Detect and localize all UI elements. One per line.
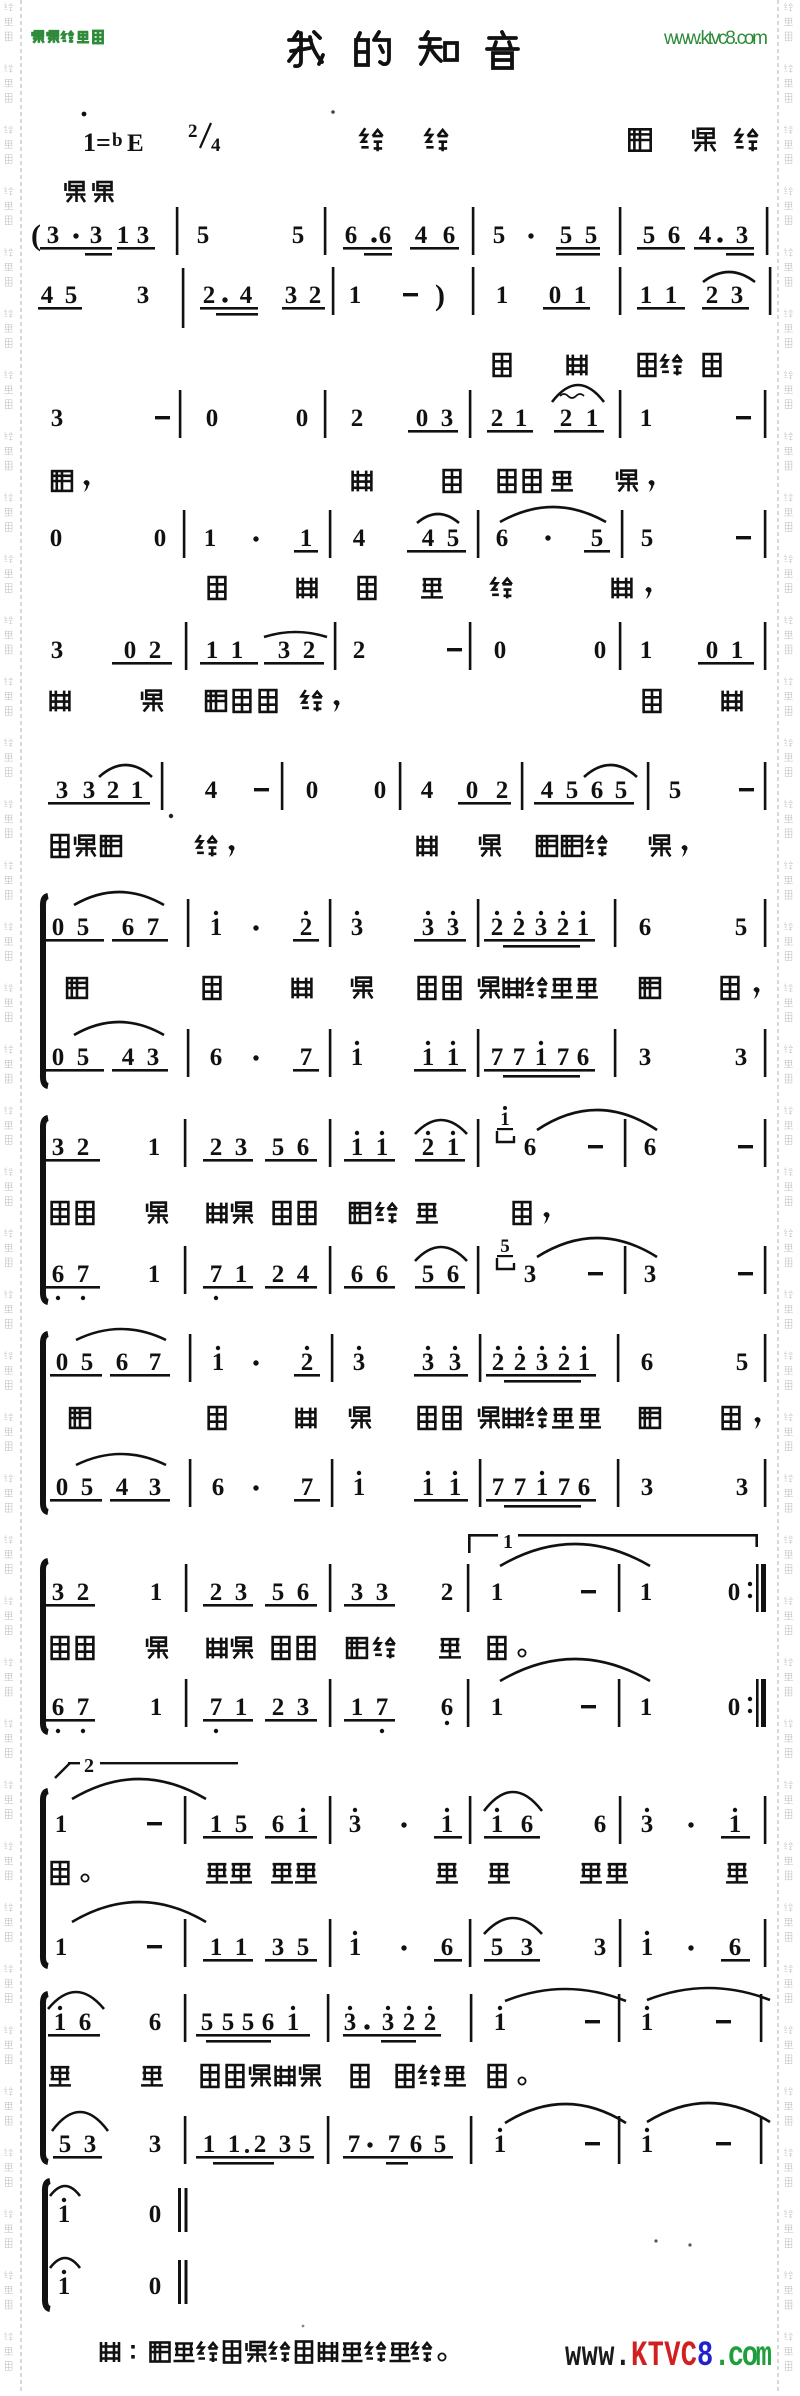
svg-text:0: 0 bbox=[154, 525, 167, 552]
svg-text:2: 2 bbox=[301, 1349, 314, 1376]
svg-text:2: 2 bbox=[303, 637, 316, 664]
svg-text:2: 2 bbox=[84, 1755, 94, 1777]
svg-text:7: 7 bbox=[557, 1044, 570, 1071]
svg-text:4: 4 bbox=[41, 282, 54, 309]
svg-text:5: 5 bbox=[272, 1134, 285, 1161]
svg-text:1: 1 bbox=[206, 637, 219, 664]
svg-text:1: 1 bbox=[447, 1134, 460, 1161]
svg-text:4: 4 bbox=[415, 222, 428, 249]
svg-text:1: 1 bbox=[491, 1811, 504, 1838]
svg-text:1: 1 bbox=[117, 222, 130, 249]
svg-text:0: 0 bbox=[149, 2273, 162, 2300]
svg-text:5: 5 bbox=[735, 914, 748, 941]
svg-text:5: 5 bbox=[493, 222, 506, 249]
svg-text:5: 5 bbox=[422, 1261, 435, 1288]
svg-text:6: 6 bbox=[639, 914, 652, 941]
svg-text:1: 1 bbox=[500, 1109, 510, 1130]
svg-text:1: 1 bbox=[353, 1474, 366, 1501]
svg-text:5: 5 bbox=[222, 2009, 235, 2036]
svg-text:7: 7 bbox=[300, 1044, 313, 1071]
svg-text:1: 1 bbox=[574, 282, 587, 309]
svg-text:7: 7 bbox=[558, 1474, 571, 1501]
svg-text:1: 1 bbox=[228, 2131, 241, 2158]
svg-text:6: 6 bbox=[379, 222, 392, 249]
svg-text:1: 1 bbox=[300, 525, 313, 552]
svg-text:2: 2 bbox=[403, 2009, 416, 2036]
svg-text:4: 4 bbox=[353, 525, 366, 552]
svg-text:7: 7 bbox=[210, 1261, 223, 1288]
svg-text:5: 5 bbox=[566, 777, 579, 804]
svg-text:1: 1 bbox=[235, 1694, 248, 1721]
svg-text:1: 1 bbox=[641, 2131, 654, 2158]
svg-text:1: 1 bbox=[640, 282, 653, 309]
svg-text:2: 2 bbox=[300, 914, 313, 941]
svg-text:5: 5 bbox=[272, 1579, 285, 1606]
svg-text:0: 0 bbox=[594, 637, 607, 664]
svg-text:2: 2 bbox=[203, 282, 216, 309]
svg-text:6: 6 bbox=[52, 1261, 65, 1288]
svg-text:0: 0 bbox=[306, 777, 319, 804]
svg-text:5: 5 bbox=[591, 525, 604, 552]
svg-text:2: 2 bbox=[513, 914, 526, 941]
svg-text:2: 2 bbox=[560, 405, 573, 432]
svg-text:0: 0 bbox=[728, 1579, 741, 1606]
svg-text:6: 6 bbox=[79, 2009, 92, 2036]
svg-text:0: 0 bbox=[728, 1694, 741, 1721]
svg-text:6: 6 bbox=[447, 1261, 460, 1288]
svg-text:5: 5 bbox=[560, 222, 573, 249]
svg-text:3: 3 bbox=[735, 1044, 748, 1071]
svg-text:0: 0 bbox=[50, 525, 63, 552]
svg-text:3: 3 bbox=[639, 1044, 652, 1071]
svg-text:1: 1 bbox=[515, 405, 528, 432]
svg-text:1: 1 bbox=[235, 1261, 248, 1288]
svg-text:3: 3 bbox=[147, 1044, 160, 1071]
svg-text:3: 3 bbox=[376, 1579, 389, 1606]
svg-text:5: 5 bbox=[197, 222, 210, 249]
svg-text:5: 5 bbox=[500, 1236, 510, 1257]
svg-text:4: 4 bbox=[205, 777, 218, 804]
svg-text:3: 3 bbox=[382, 2009, 395, 2036]
svg-text:3: 3 bbox=[56, 777, 69, 804]
svg-text:6: 6 bbox=[410, 2131, 423, 2158]
svg-text:5: 5 bbox=[585, 222, 598, 249]
svg-text:0: 0 bbox=[52, 1044, 65, 1071]
svg-text:6: 6 bbox=[578, 1474, 591, 1501]
svg-text:5: 5 bbox=[736, 1349, 749, 1376]
svg-text:3: 3 bbox=[90, 222, 103, 249]
svg-text:1: 1 bbox=[297, 1811, 310, 1838]
svg-text:2: 2 bbox=[514, 1349, 527, 1376]
svg-text:0: 0 bbox=[494, 637, 507, 664]
svg-text:1: 1 bbox=[577, 914, 590, 941]
svg-text:3: 3 bbox=[736, 1474, 749, 1501]
svg-text:4: 4 bbox=[297, 1261, 310, 1288]
svg-text:7: 7 bbox=[491, 1044, 504, 1071]
svg-text:3: 3 bbox=[83, 777, 96, 804]
svg-text:5: 5 bbox=[59, 2131, 72, 2158]
svg-text:3: 3 bbox=[149, 1474, 162, 1501]
svg-text:2: 2 bbox=[422, 1134, 435, 1161]
svg-text:2: 2 bbox=[254, 2131, 267, 2158]
svg-text:6: 6 bbox=[496, 525, 509, 552]
svg-text:5: 5 bbox=[77, 914, 90, 941]
svg-text:1: 1 bbox=[578, 1349, 591, 1376]
svg-text:2: 2 bbox=[353, 637, 366, 664]
svg-text:0: 0 bbox=[549, 282, 562, 309]
svg-text:3: 3 bbox=[149, 2131, 162, 2158]
svg-text:5: 5 bbox=[81, 1349, 94, 1376]
svg-text:3: 3 bbox=[447, 914, 460, 941]
svg-text:0: 0 bbox=[374, 777, 387, 804]
svg-text:1: 1 bbox=[55, 1811, 68, 1838]
svg-text:2: 2 bbox=[496, 777, 509, 804]
svg-text:1=: 1= bbox=[83, 128, 111, 157]
svg-text:2: 2 bbox=[107, 777, 120, 804]
svg-text:7: 7 bbox=[492, 1474, 505, 1501]
svg-text:1: 1 bbox=[150, 1694, 163, 1721]
svg-text:1: 1 bbox=[586, 405, 599, 432]
svg-text:1: 1 bbox=[491, 1694, 504, 1721]
svg-text:5: 5 bbox=[235, 1811, 248, 1838]
svg-text:1: 1 bbox=[640, 405, 653, 432]
svg-text:6: 6 bbox=[521, 1811, 534, 1838]
svg-text:3: 3 bbox=[351, 1579, 364, 1606]
svg-text:0: 0 bbox=[56, 1349, 69, 1376]
svg-text:7: 7 bbox=[77, 1261, 90, 1288]
svg-text:4: 4 bbox=[541, 777, 554, 804]
svg-text:0: 0 bbox=[124, 637, 137, 664]
svg-text:3: 3 bbox=[644, 1261, 657, 1288]
svg-text:6: 6 bbox=[297, 1134, 310, 1161]
svg-text:1: 1 bbox=[210, 1934, 223, 1961]
svg-text:4: 4 bbox=[122, 1044, 135, 1071]
svg-text:1: 1 bbox=[441, 1811, 454, 1838]
svg-text:2: 2 bbox=[309, 282, 322, 309]
svg-text:6: 6 bbox=[376, 1261, 389, 1288]
svg-text:www.: www. bbox=[565, 2337, 631, 2376]
svg-text:4: 4 bbox=[211, 135, 221, 156]
svg-text:2: 2 bbox=[351, 405, 364, 432]
svg-text:0: 0 bbox=[416, 405, 429, 432]
svg-text:5: 5 bbox=[65, 282, 78, 309]
svg-text:2: 2 bbox=[706, 282, 719, 309]
svg-text:1: 1 bbox=[349, 1934, 362, 1961]
svg-text:1: 1 bbox=[349, 282, 362, 309]
svg-text:3: 3 bbox=[422, 914, 435, 941]
svg-text:6: 6 bbox=[122, 914, 135, 941]
svg-text:1: 1 bbox=[210, 1811, 223, 1838]
svg-text:1: 1 bbox=[58, 2201, 71, 2228]
svg-text:8: 8 bbox=[697, 2337, 713, 2376]
svg-text:0: 0 bbox=[52, 914, 65, 941]
svg-text:1: 1 bbox=[449, 1474, 462, 1501]
svg-text:3: 3 bbox=[594, 1934, 607, 1961]
svg-text:6: 6 bbox=[441, 1694, 454, 1721]
svg-text:3: 3 bbox=[641, 1474, 654, 1501]
svg-text:5: 5 bbox=[641, 525, 654, 552]
svg-text:6: 6 bbox=[297, 1579, 310, 1606]
svg-text:3: 3 bbox=[279, 2131, 292, 2158]
svg-text:5: 5 bbox=[297, 1934, 310, 1961]
svg-text:6: 6 bbox=[641, 1349, 654, 1376]
svg-text:7: 7 bbox=[147, 914, 160, 941]
svg-text:7: 7 bbox=[376, 1694, 389, 1721]
svg-text:2: 2 bbox=[149, 637, 162, 664]
svg-text:0: 0 bbox=[296, 405, 309, 432]
svg-text:3: 3 bbox=[353, 1349, 366, 1376]
svg-text:2: 2 bbox=[188, 121, 198, 142]
svg-text:1: 1 bbox=[235, 1934, 248, 1961]
svg-text:1: 1 bbox=[376, 1134, 389, 1161]
svg-text:1: 1 bbox=[351, 1694, 364, 1721]
svg-text:7: 7 bbox=[149, 1349, 162, 1376]
svg-text:5: 5 bbox=[491, 1934, 504, 1961]
svg-text:1: 1 bbox=[729, 1811, 742, 1838]
svg-text:3: 3 bbox=[344, 2009, 357, 2036]
svg-text:1: 1 bbox=[204, 525, 217, 552]
svg-text:1: 1 bbox=[54, 2009, 67, 2036]
svg-text:1: 1 bbox=[148, 1261, 161, 1288]
svg-text:1: 1 bbox=[131, 777, 144, 804]
svg-text:3: 3 bbox=[641, 1811, 654, 1838]
svg-text:6: 6 bbox=[668, 222, 681, 249]
svg-text:6: 6 bbox=[212, 1474, 225, 1501]
svg-text:3: 3 bbox=[524, 1261, 537, 1288]
svg-text:6: 6 bbox=[52, 1694, 65, 1721]
svg-text:1: 1 bbox=[422, 1474, 435, 1501]
svg-text:6: 6 bbox=[272, 1811, 285, 1838]
svg-text:3: 3 bbox=[349, 1811, 362, 1838]
svg-text:6: 6 bbox=[594, 1811, 607, 1838]
svg-text:1: 1 bbox=[731, 637, 744, 664]
svg-text:0: 0 bbox=[56, 1474, 69, 1501]
svg-text:3: 3 bbox=[736, 222, 749, 249]
svg-text:1: 1 bbox=[494, 2131, 507, 2158]
svg-text:2: 2 bbox=[424, 2009, 437, 2036]
svg-text:3: 3 bbox=[52, 1579, 65, 1606]
svg-text:3: 3 bbox=[51, 405, 64, 432]
svg-text:3: 3 bbox=[52, 1134, 65, 1161]
svg-text:0: 0 bbox=[466, 777, 479, 804]
svg-text:0: 0 bbox=[706, 637, 719, 664]
svg-text:7: 7 bbox=[348, 2131, 361, 2158]
svg-text:1: 1 bbox=[351, 1044, 364, 1071]
svg-text:1: 1 bbox=[203, 2131, 216, 2158]
svg-text:3: 3 bbox=[731, 282, 744, 309]
svg-text:3: 3 bbox=[441, 405, 454, 432]
svg-text:1: 1 bbox=[148, 1134, 161, 1161]
svg-text:1: 1 bbox=[491, 1579, 504, 1606]
svg-text:3: 3 bbox=[84, 2131, 97, 2158]
svg-text:2: 2 bbox=[558, 1349, 571, 1376]
svg-text:5: 5 bbox=[615, 777, 628, 804]
svg-text:5: 5 bbox=[292, 222, 305, 249]
svg-text:6: 6 bbox=[443, 222, 456, 249]
svg-text:2: 2 bbox=[272, 1261, 285, 1288]
svg-text:2: 2 bbox=[77, 1579, 90, 1606]
svg-text:5: 5 bbox=[669, 777, 682, 804]
svg-text:1: 1 bbox=[55, 1934, 68, 1961]
svg-text:1: 1 bbox=[58, 2273, 71, 2300]
svg-text:1: 1 bbox=[351, 1134, 364, 1161]
svg-text:6: 6 bbox=[729, 1934, 742, 1961]
svg-text:E: E bbox=[127, 130, 144, 157]
svg-text:3: 3 bbox=[137, 222, 150, 249]
svg-text:1: 1 bbox=[422, 1044, 435, 1071]
svg-text:6: 6 bbox=[577, 1044, 590, 1071]
svg-text:0: 0 bbox=[149, 2201, 162, 2228]
svg-text:3: 3 bbox=[137, 282, 150, 309]
svg-text:3: 3 bbox=[449, 1349, 462, 1376]
svg-text:7: 7 bbox=[301, 1474, 314, 1501]
svg-text:5: 5 bbox=[299, 2131, 312, 2158]
svg-text:5: 5 bbox=[643, 222, 656, 249]
svg-text:4: 4 bbox=[699, 222, 712, 249]
svg-text:3: 3 bbox=[285, 282, 298, 309]
svg-text:5: 5 bbox=[447, 525, 460, 552]
svg-text:6: 6 bbox=[345, 222, 358, 249]
svg-text:1: 1 bbox=[641, 2009, 654, 2036]
svg-text:6: 6 bbox=[351, 1261, 364, 1288]
svg-text:1: 1 bbox=[640, 1579, 653, 1606]
svg-text:1: 1 bbox=[641, 1934, 654, 1961]
svg-text:7: 7 bbox=[513, 1044, 526, 1071]
svg-text:3: 3 bbox=[351, 914, 364, 941]
svg-text:4: 4 bbox=[421, 777, 434, 804]
svg-text:1: 1 bbox=[640, 637, 653, 664]
svg-text:6: 6 bbox=[116, 1349, 129, 1376]
svg-text:5: 5 bbox=[201, 2009, 214, 2036]
svg-text:4: 4 bbox=[240, 282, 253, 309]
svg-text:2: 2 bbox=[492, 1349, 505, 1376]
svg-text:7: 7 bbox=[77, 1694, 90, 1721]
svg-text:5: 5 bbox=[242, 2009, 255, 2036]
svg-text:4: 4 bbox=[422, 525, 435, 552]
svg-text:b: b bbox=[112, 130, 123, 151]
svg-text:1: 1 bbox=[210, 914, 223, 941]
svg-text:3: 3 bbox=[297, 1694, 310, 1721]
svg-text:KTVC: KTVC bbox=[631, 2337, 697, 2376]
svg-text:3: 3 bbox=[422, 1349, 435, 1376]
svg-text:7: 7 bbox=[210, 1694, 223, 1721]
svg-text:1: 1 bbox=[231, 637, 244, 664]
svg-text:.com: .com bbox=[714, 2337, 772, 2376]
svg-text:1: 1 bbox=[150, 1579, 163, 1606]
svg-text:1: 1 bbox=[665, 282, 678, 309]
svg-text:1: 1 bbox=[536, 1474, 549, 1501]
svg-text:2: 2 bbox=[491, 914, 504, 941]
svg-text:6: 6 bbox=[262, 2009, 275, 2036]
svg-text:2: 2 bbox=[77, 1134, 90, 1161]
svg-text:3: 3 bbox=[235, 1579, 248, 1606]
svg-text:5: 5 bbox=[81, 1474, 94, 1501]
svg-text:5: 5 bbox=[434, 2131, 447, 2158]
svg-text:3: 3 bbox=[235, 1134, 248, 1161]
svg-text:1: 1 bbox=[494, 2009, 507, 2036]
svg-text:3: 3 bbox=[521, 1934, 534, 1961]
svg-text:7: 7 bbox=[388, 2131, 401, 2158]
svg-text:6: 6 bbox=[524, 1134, 537, 1161]
svg-text:7: 7 bbox=[514, 1474, 527, 1501]
svg-text:2: 2 bbox=[272, 1694, 285, 1721]
svg-text:6: 6 bbox=[591, 777, 604, 804]
svg-text:2: 2 bbox=[557, 914, 570, 941]
svg-text:(: ( bbox=[31, 219, 41, 252]
svg-text:4: 4 bbox=[116, 1474, 129, 1501]
svg-text:1: 1 bbox=[212, 1349, 225, 1376]
svg-text:2: 2 bbox=[491, 405, 504, 432]
svg-text:): ) bbox=[435, 279, 445, 312]
svg-text:1: 1 bbox=[535, 1044, 548, 1071]
svg-text:0: 0 bbox=[206, 405, 219, 432]
svg-text:6: 6 bbox=[441, 1934, 454, 1961]
svg-text:3: 3 bbox=[272, 1934, 285, 1961]
svg-text:2: 2 bbox=[210, 1579, 223, 1606]
svg-text:www.ktvc8.com: www.ktvc8.com bbox=[663, 28, 768, 49]
svg-text:1: 1 bbox=[640, 1694, 653, 1721]
svg-text:6: 6 bbox=[149, 2009, 162, 2036]
svg-text:2: 2 bbox=[441, 1579, 454, 1606]
svg-text:1: 1 bbox=[496, 282, 509, 309]
svg-text:3: 3 bbox=[536, 1349, 549, 1376]
svg-text:2: 2 bbox=[210, 1134, 223, 1161]
svg-text:3: 3 bbox=[51, 637, 64, 664]
svg-text:3: 3 bbox=[47, 222, 60, 249]
svg-text:6: 6 bbox=[210, 1044, 223, 1071]
svg-text:1: 1 bbox=[287, 2009, 300, 2036]
svg-text:3: 3 bbox=[278, 637, 291, 664]
svg-text:6: 6 bbox=[644, 1134, 657, 1161]
svg-text:5: 5 bbox=[77, 1044, 90, 1071]
svg-text:3: 3 bbox=[535, 914, 548, 941]
svg-text:1: 1 bbox=[447, 1044, 460, 1071]
svg-text:1: 1 bbox=[503, 1531, 513, 1553]
